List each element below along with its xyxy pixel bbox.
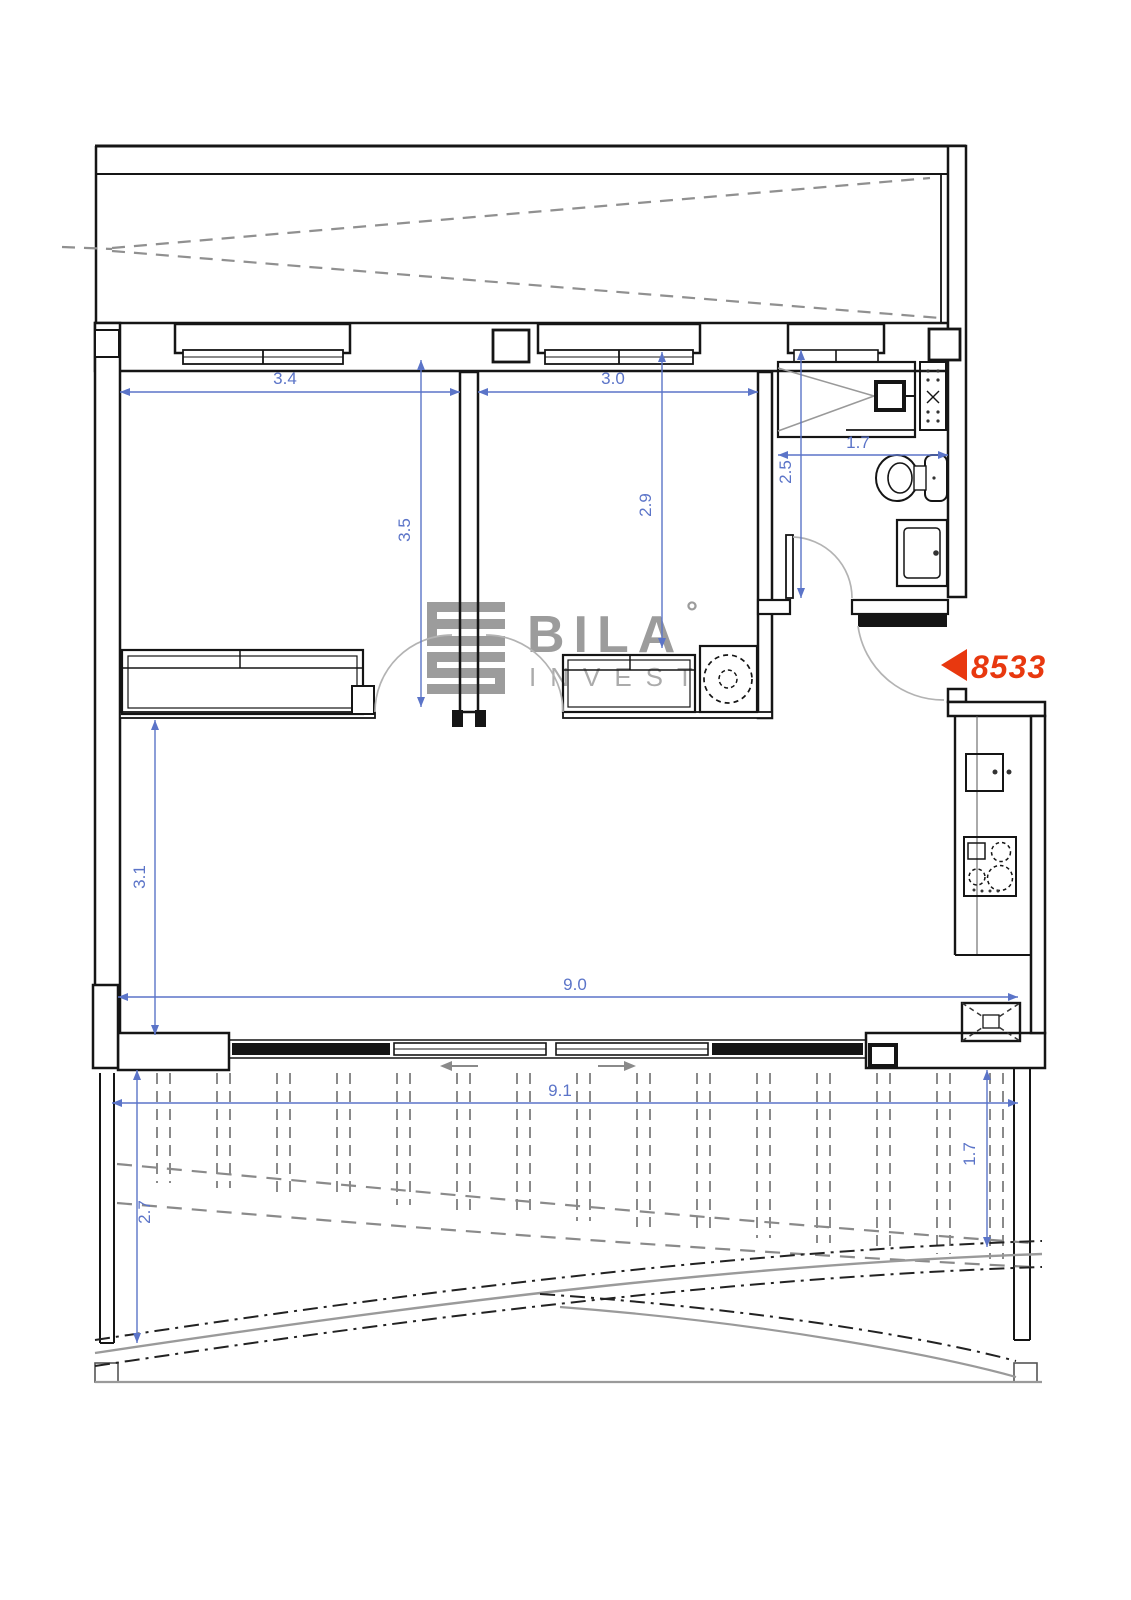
fixed-panel [712, 1043, 863, 1055]
washbasin [897, 520, 947, 586]
left-pillar [93, 985, 118, 1068]
bottom-left-wall [118, 1033, 229, 1070]
right-wall [948, 146, 966, 597]
dim-bedroom2-width: 3.0 [601, 369, 625, 388]
dim-bath-depth: 2.5 [776, 460, 795, 484]
entrance-arrow-icon [941, 649, 967, 681]
dim-bedroom2-depth: 2.9 [636, 493, 655, 517]
terrace-edge-dashed [117, 1164, 1032, 1267]
floor-plan-page: BILA ° INVEST [0, 0, 1131, 1600]
door-swing-arc [793, 537, 852, 598]
bedroom1-window [175, 324, 350, 364]
kitchen-top-wall [948, 702, 1045, 716]
windows [175, 324, 960, 364]
unit-number: 8533 [971, 649, 1046, 685]
dimension-labels: 3.4 3.0 3.5 2.9 1.7 2.5 3.1 9.0 9.1 2.7 … [130, 369, 979, 1224]
toilet [876, 455, 947, 501]
entrance-door-arc [858, 626, 944, 700]
washing-machine [700, 646, 757, 712]
dim-terrace-depth-left: 2.7 [135, 1200, 154, 1224]
left-wall [95, 323, 120, 1033]
floor-plan-drawing: BILA ° INVEST [0, 0, 1131, 1600]
terrace [95, 1068, 1042, 1382]
dim-living-width: 9.0 [563, 975, 587, 994]
roof-slope-dashed-lines [62, 178, 940, 318]
brand-degree-mark: ° [686, 596, 698, 629]
roof-band [62, 146, 966, 323]
dim-living-depth: 3.1 [130, 865, 149, 889]
door-pillar [870, 1045, 896, 1066]
wardrobe [122, 650, 374, 714]
wall-column [493, 330, 529, 362]
cooktop [964, 837, 1016, 896]
bathroom-door-leaf [786, 535, 793, 598]
slide-direction-arrows [440, 1061, 636, 1071]
kitchen-sink [966, 754, 1012, 791]
dimensions [112, 350, 1018, 1343]
corner-footing [1014, 1363, 1037, 1382]
entry-wall-section [858, 614, 947, 627]
brand-subtitle: INVEST [529, 662, 707, 692]
dim-bath-width: 1.7 [846, 433, 870, 452]
hall-entry [858, 626, 944, 700]
site-lines [95, 1241, 1042, 1377]
shower [778, 362, 915, 437]
fixed-panel [232, 1043, 390, 1055]
kitchen [870, 716, 1031, 1066]
dim-bedroom1-depth: 3.5 [395, 518, 414, 542]
bedroom2-window [538, 324, 700, 364]
dim-terrace-depth-right: 1.7 [960, 1142, 979, 1166]
dim-bedroom1-width: 3.4 [273, 369, 297, 388]
bedroom-1 [122, 635, 452, 714]
logo-mark-icon [427, 602, 505, 694]
bathroom [778, 362, 947, 598]
logo-watermark: BILA ° INVEST [427, 596, 707, 694]
dim-terrace-width: 9.1 [548, 1081, 572, 1100]
bathroom-bottom-wall [758, 600, 790, 614]
unit-marker: 8533 [941, 649, 1046, 685]
shower-drain [876, 382, 904, 410]
kitchen-right-wall [1031, 716, 1045, 1033]
bathroom-window [788, 324, 884, 362]
bathroom-left-wall [758, 372, 772, 718]
wall-column [929, 329, 960, 360]
sliding-door [229, 1040, 866, 1071]
